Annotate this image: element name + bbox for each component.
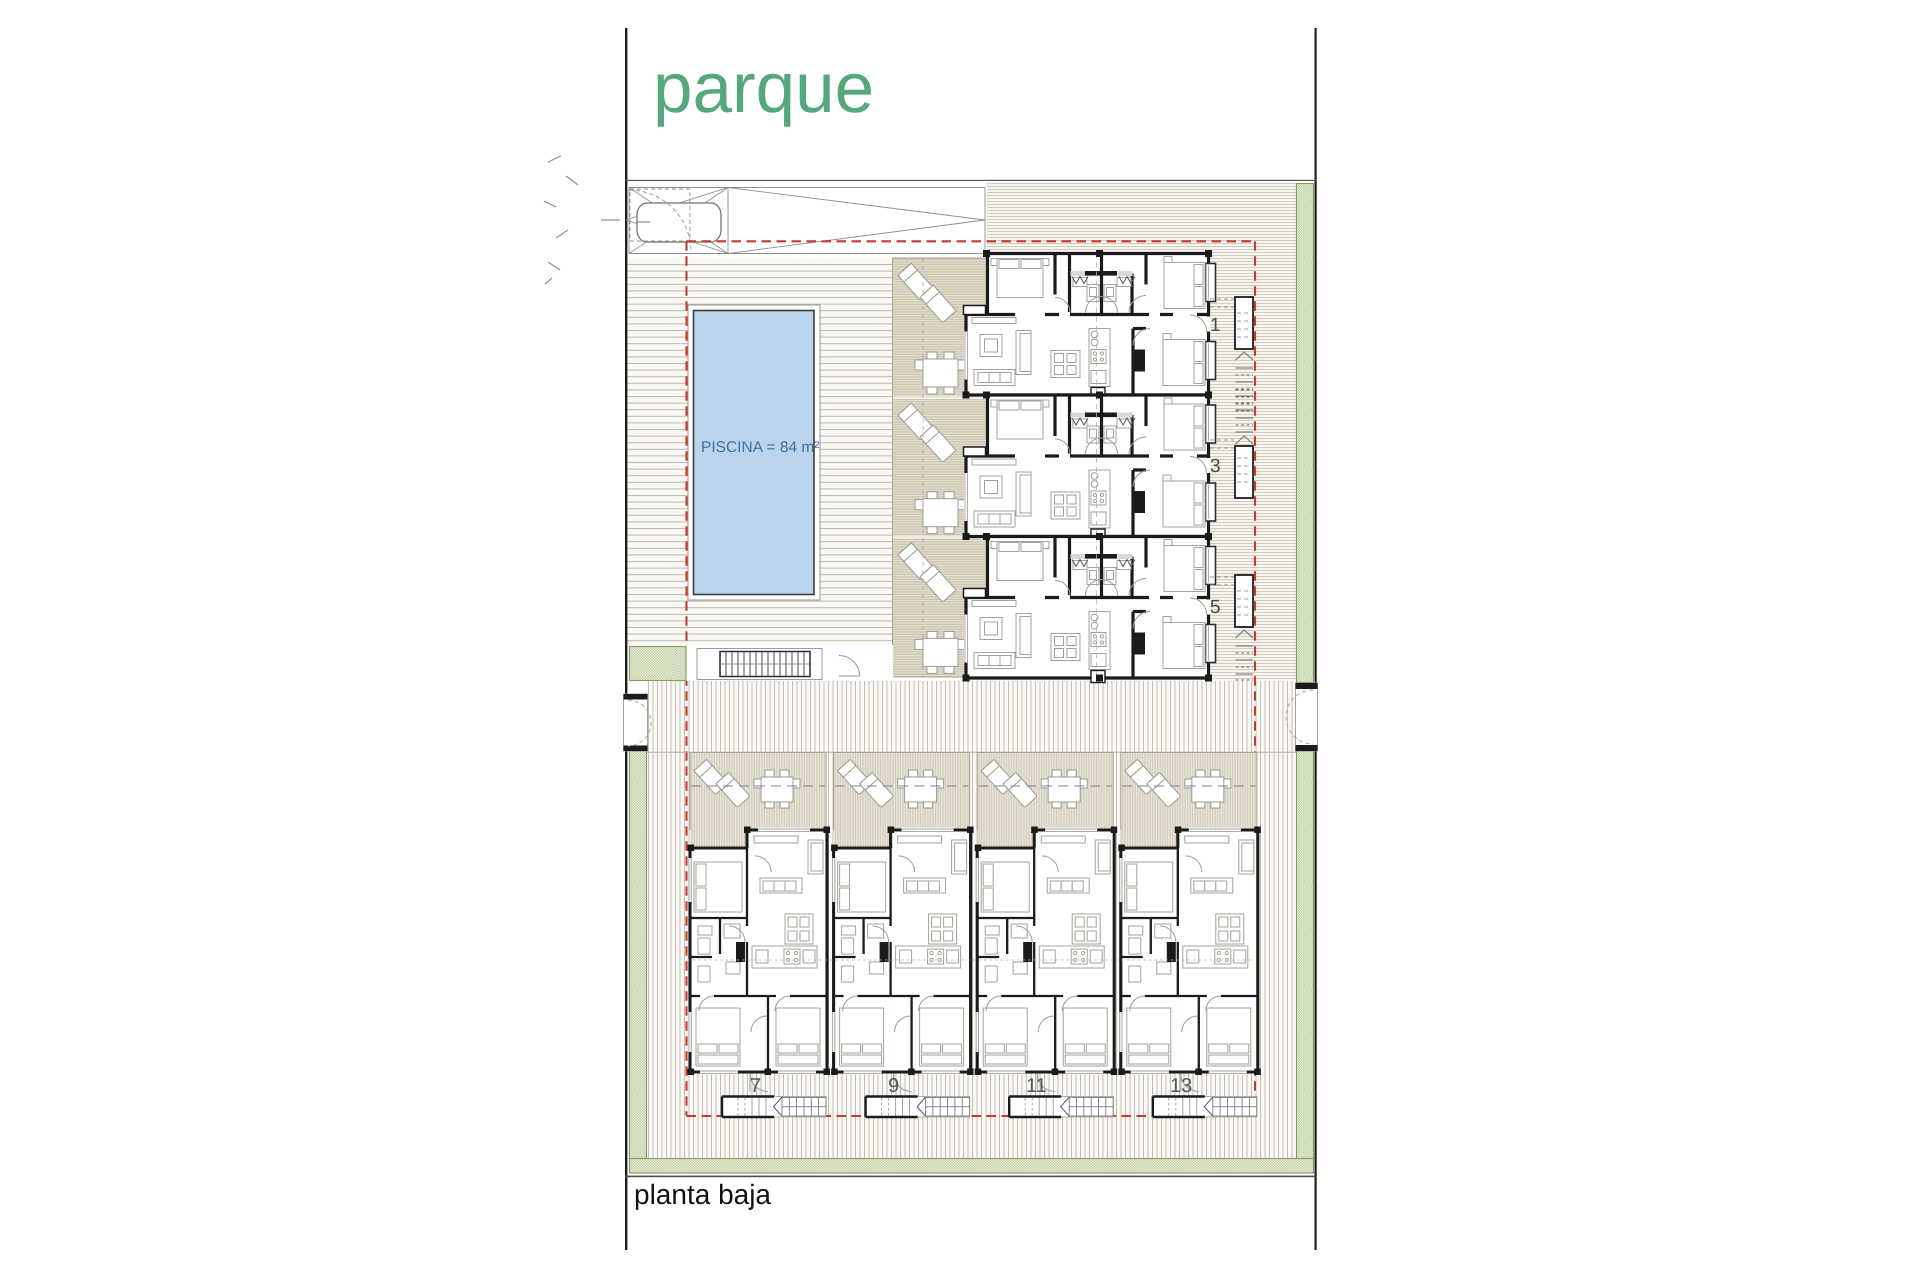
svg-text:7: 7: [750, 1075, 761, 1097]
svg-text:3: 3: [1210, 456, 1221, 477]
svg-text:5: 5: [1210, 597, 1221, 618]
svg-text:parque: parque: [653, 49, 874, 128]
svg-text:13: 13: [1170, 1075, 1192, 1097]
svg-text:1: 1: [1210, 315, 1221, 336]
svg-text:planta baja: planta baja: [634, 1179, 771, 1210]
svg-text:PISCINA = 84 m²: PISCINA = 84 m²: [701, 439, 819, 456]
svg-text:9: 9: [888, 1075, 899, 1097]
svg-text:11: 11: [1026, 1075, 1047, 1097]
